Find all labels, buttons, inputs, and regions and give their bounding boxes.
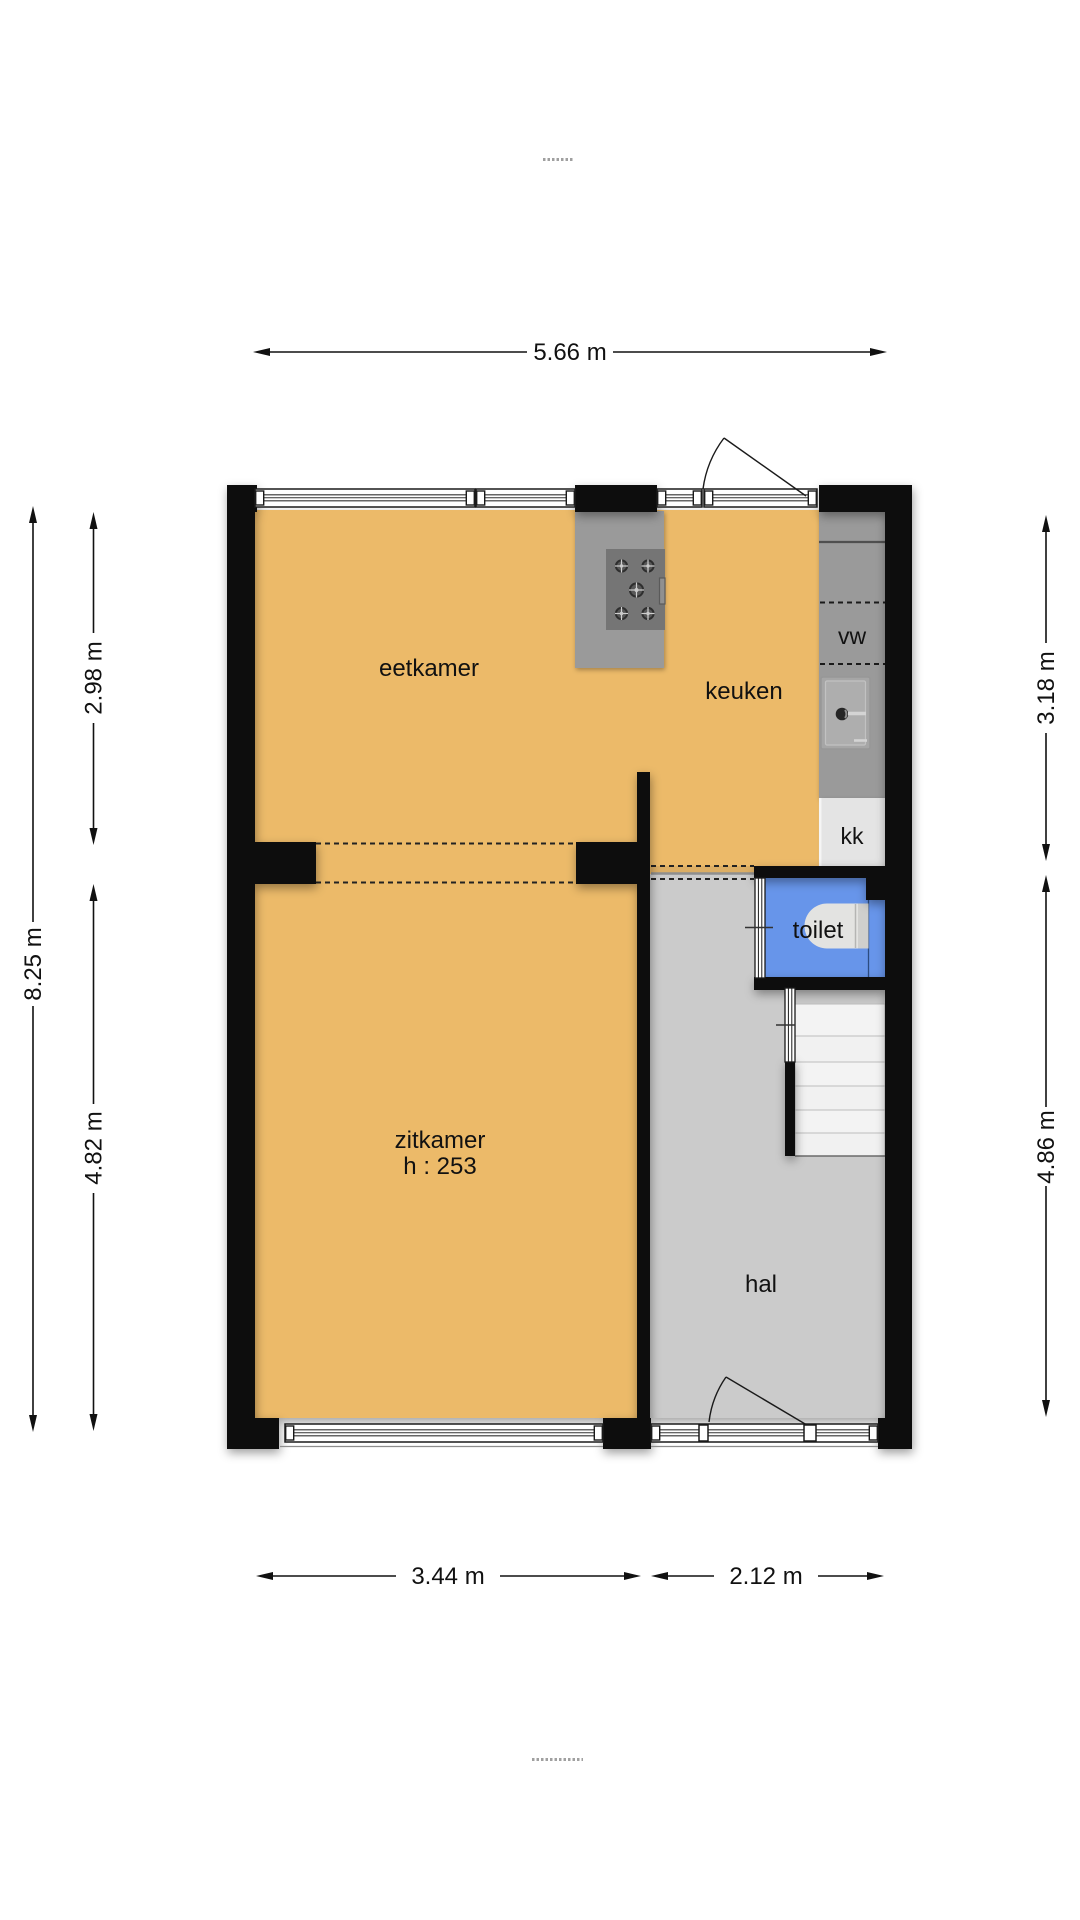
svg-text:vw: vw (838, 623, 867, 649)
svg-text:3.44 m: 3.44 m (411, 1563, 484, 1590)
svg-text:3.18 m: 3.18 m (1033, 651, 1060, 724)
svg-text:kk: kk (841, 823, 865, 849)
svg-text:4.82 m: 4.82 m (81, 1111, 108, 1184)
svg-text:h : 253: h : 253 (403, 1153, 476, 1180)
svg-text:2.98 m: 2.98 m (81, 641, 108, 714)
svg-text:keuken: keuken (705, 678, 782, 705)
svg-text:toilet: toilet (793, 917, 844, 944)
svg-text:hal: hal (745, 1271, 777, 1298)
svg-text:4.86 m: 4.86 m (1033, 1110, 1060, 1183)
svg-text:5.66 m: 5.66 m (533, 339, 606, 366)
svg-text:eetkamer: eetkamer (379, 655, 479, 682)
svg-text:8.25 m: 8.25 m (20, 927, 47, 1000)
svg-text:2.12 m: 2.12 m (729, 1563, 802, 1590)
svg-text:zitkamer: zitkamer (395, 1127, 486, 1154)
